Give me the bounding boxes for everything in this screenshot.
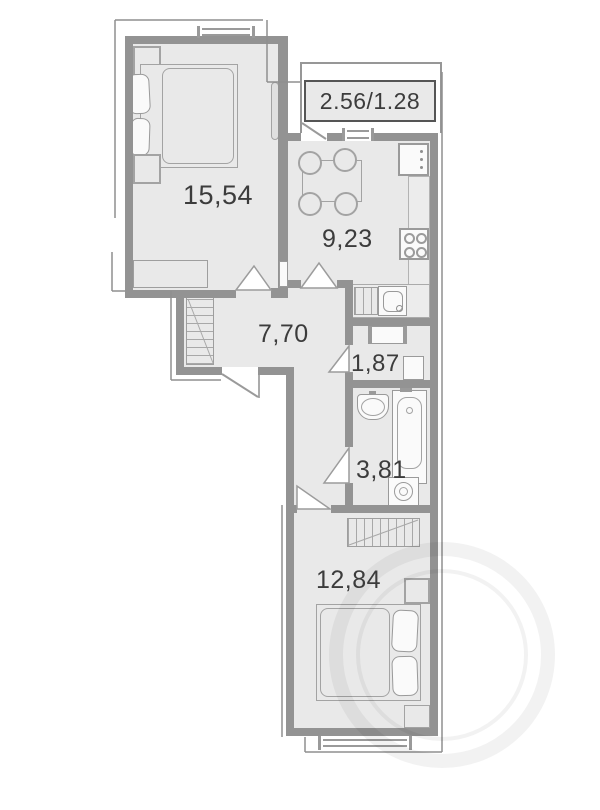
wardrobe [186,297,214,365]
wardrobe [347,518,420,547]
bathtub-faucet [400,388,412,392]
wall [345,380,430,388]
bathtub-drain [406,407,413,414]
cabinet [403,356,424,380]
bench [404,705,430,728]
floor-plan: 2.56/1.28 [0,0,600,810]
kitchen-sink [378,286,407,316]
vent-shaft [279,261,288,287]
stove-burner [404,233,415,244]
cabinet [368,326,407,344]
bedroom-door-threshold [236,290,271,298]
wall [345,483,353,513]
balcony-area-label: 2.56/1.28 [320,88,420,115]
wall [176,290,184,375]
wall [327,133,342,141]
bedroom-area-label: 15,54 [183,180,253,211]
washbasin-bowl [361,398,385,416]
kitchen-door-threshold [301,280,337,288]
wall [430,133,438,736]
bench [133,260,208,288]
wall [125,36,133,298]
wall [345,280,353,345]
entrance-door-leaf [222,374,258,397]
fridge-dot [420,166,423,169]
stove-burner [416,233,427,244]
storage-area-label: 1,87 [351,350,400,378]
wall [337,280,345,288]
chair [334,192,358,216]
washer-drum-inner [399,487,408,496]
stove [399,228,429,260]
bathroom-area-label: 3,81 [356,456,407,485]
washbasin-faucet [369,391,376,395]
pillow [391,656,418,697]
wall [286,728,437,736]
bed-blanket [320,608,390,697]
wall [374,133,437,141]
wall [286,133,301,141]
chair [298,151,322,175]
stove-burner [404,247,415,258]
chair [298,192,322,216]
hallway-area-label: 7,70 [258,320,309,349]
window [197,26,255,38]
pillow [391,609,419,652]
balcony-label-box: 2.56/1.28 [304,80,436,122]
bed-blanket [162,68,234,164]
washbasin [357,394,389,420]
nightstand [133,154,161,184]
bedroom2-area-label: 12,84 [316,566,381,595]
fridge [398,143,429,176]
stove-burner [416,247,427,258]
double-bed [140,64,238,168]
drainboard [354,287,378,315]
chair [333,148,357,172]
kitchen-area-label: 9,23 [322,225,373,254]
bathroom-door-threshold [345,447,353,483]
wall [286,367,294,736]
window [318,736,412,750]
corridor-floor [294,367,345,505]
wall [278,36,288,290]
fridge-dot [420,158,423,161]
wall [345,318,430,326]
wall [345,372,353,447]
wall [286,280,301,288]
bedroom2-door-threshold [297,505,331,513]
nightstand [404,578,430,604]
fridge-dot [420,150,423,153]
wall [345,505,430,513]
sink-faucet [396,305,403,312]
wall [331,505,345,513]
